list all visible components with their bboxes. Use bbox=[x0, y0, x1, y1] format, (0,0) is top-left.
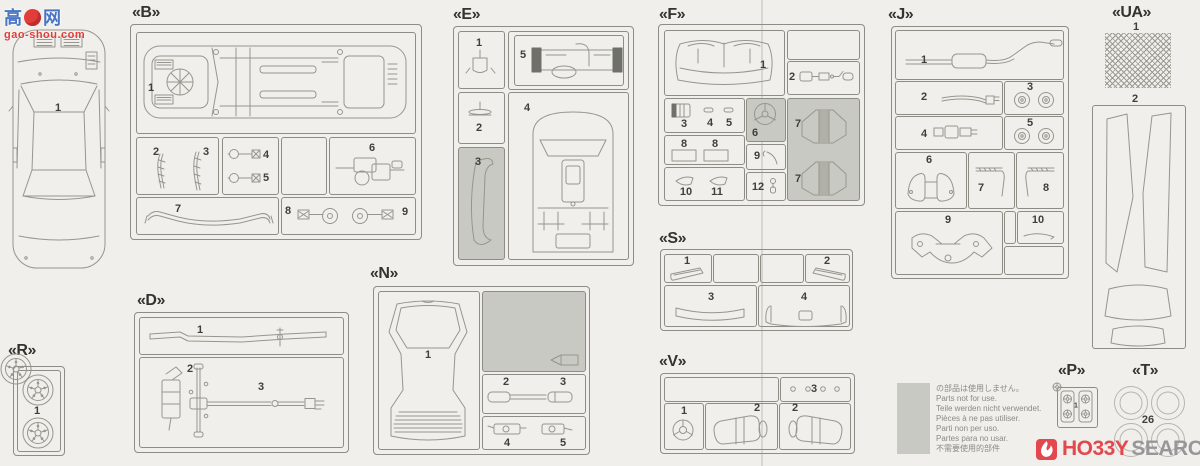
v-box-empty bbox=[664, 377, 779, 402]
watermark-ball-icon bbox=[24, 9, 41, 26]
part-number-e-3: 3 bbox=[475, 156, 481, 168]
watermark: 高 网 gao-shou.com bbox=[4, 4, 85, 41]
part-number-body-1: 1 bbox=[55, 102, 61, 114]
part-number-e-5: 5 bbox=[520, 49, 526, 61]
j-hubs-drawing-a bbox=[1008, 90, 1060, 110]
part-number-j-8: 8 bbox=[1043, 182, 1049, 194]
e-part2-drawing bbox=[462, 98, 499, 122]
v-seat-left-drawing bbox=[706, 410, 776, 446]
part-number-b-9: 9 bbox=[402, 206, 408, 218]
j-subframe-drawing bbox=[898, 226, 998, 272]
watermark-char-right: 网 bbox=[43, 4, 61, 30]
not-for-use-swatch bbox=[897, 383, 930, 454]
part-number-v-2b: 2 bbox=[792, 402, 798, 414]
j-pipe-l-drawing bbox=[970, 160, 1012, 204]
part-number-s-1: 1 bbox=[684, 255, 690, 267]
part-number-t-26: 26 bbox=[1142, 414, 1154, 426]
part-number-f-8b: 8 bbox=[712, 138, 718, 150]
part-number-b-8: 8 bbox=[285, 205, 291, 217]
part-number-n-4: 4 bbox=[504, 437, 510, 449]
chassis-drawing bbox=[140, 36, 410, 128]
s-spoiler-drawing bbox=[670, 302, 750, 324]
s-skirt-left-drawing bbox=[668, 266, 708, 282]
b-box-empty bbox=[281, 137, 327, 195]
section-n-label: «N» bbox=[370, 265, 398, 283]
section-f-label: «F» bbox=[659, 6, 685, 24]
e-part4-interior-tub-drawing bbox=[520, 104, 626, 256]
part-number-j-7: 7 bbox=[978, 182, 984, 194]
section-v-label: «V» bbox=[659, 353, 686, 371]
s-bumper-drawing bbox=[762, 300, 846, 326]
j-hubs-drawing-b bbox=[1008, 126, 1060, 146]
section-t-label: «T» bbox=[1132, 362, 1158, 380]
section-r-label: «R» bbox=[8, 342, 36, 360]
part-number-j-4: 4 bbox=[921, 128, 927, 140]
part-number-n-5: 5 bbox=[560, 437, 566, 449]
not-for-use-legend: の部品は使用しません。 Parts not for use. Teile wer… bbox=[936, 384, 1041, 454]
s-box-empty-1 bbox=[713, 254, 759, 283]
part-number-f-1: 1 bbox=[760, 59, 766, 71]
e-part1-drawing bbox=[460, 46, 501, 84]
part-number-p-1: 1 bbox=[1074, 403, 1078, 410]
part-number-d-3: 3 bbox=[258, 381, 264, 393]
stabilizer-bar-drawing bbox=[140, 204, 274, 230]
shaft-parts-drawing bbox=[224, 140, 274, 192]
legend-line-en: Parts not for use. bbox=[936, 394, 1041, 404]
part-number-j-3: 3 bbox=[1027, 81, 1033, 93]
f-mirrors-drawing bbox=[668, 172, 740, 188]
legend-line-fr: Pièces à ne pas utiliser. bbox=[936, 414, 1041, 424]
section-s-label: «S» bbox=[659, 230, 686, 248]
part-number-v-2a: 2 bbox=[754, 402, 760, 414]
parts-map-sheet: 高 网 gao-shou.com 1 «B» 1 2 3 4 bbox=[0, 0, 1200, 466]
n-glazing-drawing bbox=[381, 294, 475, 446]
f-box-empty bbox=[787, 30, 860, 60]
part-number-j-6: 6 bbox=[926, 154, 932, 166]
watermark-logo: 高 网 bbox=[4, 4, 85, 30]
v-seat-right-drawing bbox=[780, 410, 850, 446]
part-number-b-7: 7 bbox=[175, 203, 181, 215]
f-shifter-drawing bbox=[798, 66, 856, 90]
watermark-char-left: 高 bbox=[4, 4, 22, 30]
e-part5-dashboard-drawing bbox=[530, 38, 626, 82]
part-number-f-5: 5 bbox=[726, 117, 732, 129]
f-knob-drawing bbox=[766, 176, 780, 196]
part-number-j-5: 5 bbox=[1027, 117, 1033, 129]
part-number-f-12: 12 bbox=[752, 181, 764, 193]
section-j-label: «J» bbox=[888, 6, 913, 24]
part-number-d-1: 1 bbox=[197, 324, 203, 336]
hobby-search-flame-icon bbox=[1036, 439, 1057, 460]
legend-line-zh: 不需要使用的部件 bbox=[936, 444, 1041, 454]
part-number-s-3: 3 bbox=[708, 291, 714, 303]
ua-mesh-sheet bbox=[1105, 33, 1171, 88]
part-number-n-2: 2 bbox=[503, 376, 509, 388]
part-number-d-2: 2 bbox=[187, 363, 193, 375]
part-number-v-3: 3 bbox=[811, 383, 817, 395]
part-number-f-8a: 8 bbox=[681, 138, 687, 150]
legend-line-es: Partes para no usar. bbox=[936, 434, 1041, 444]
n-small-lenses-drawing bbox=[486, 420, 582, 440]
car-body-top-drawing bbox=[6, 22, 112, 274]
v-wheel-drawing bbox=[666, 416, 700, 446]
f-lever-drawing bbox=[762, 148, 782, 166]
part-number-f-9: 9 bbox=[754, 150, 760, 162]
part-number-s-2: 2 bbox=[824, 255, 830, 267]
motor-assembly-drawing bbox=[332, 152, 412, 190]
part-number-r-1: 1 bbox=[34, 405, 40, 417]
section-b-label: «B» bbox=[132, 4, 160, 22]
d-driveshaft-assembly-drawing bbox=[142, 362, 342, 444]
part-number-f-10: 10 bbox=[680, 186, 692, 198]
part-number-f-4: 4 bbox=[707, 117, 713, 129]
section-p-label: «P» bbox=[1058, 362, 1085, 380]
part-number-f-7b: 7 bbox=[795, 173, 801, 185]
part-number-n-1: 1 bbox=[425, 349, 431, 361]
part-number-f-6: 6 bbox=[752, 127, 758, 139]
part-number-s-4: 4 bbox=[801, 291, 807, 303]
j-pipe-drawing bbox=[936, 86, 1000, 108]
ua-window-masks-drawing bbox=[1094, 107, 1182, 345]
part-number-b-4: 4 bbox=[263, 149, 269, 161]
hobby-search-logo: HO33Y SEARCH bbox=[1036, 437, 1200, 461]
part-number-f-11: 11 bbox=[711, 186, 723, 198]
part-number-e-2: 2 bbox=[476, 122, 482, 134]
legend-line-de: Teile werden nicht verwendet. bbox=[936, 404, 1041, 414]
part-number-e-4: 4 bbox=[524, 102, 530, 114]
section-e-label: «E» bbox=[453, 6, 480, 24]
part-number-ua-2: 2 bbox=[1132, 93, 1138, 105]
j-box-strip bbox=[1004, 211, 1016, 244]
n-lens-strip-drawing bbox=[486, 388, 582, 406]
part-number-b-3: 3 bbox=[203, 146, 209, 158]
f-steering-wheel-drawing bbox=[748, 100, 782, 130]
s-skirt-right-drawing bbox=[808, 266, 848, 282]
n-funnel-part-drawing bbox=[548, 352, 584, 368]
legend-line-jp: の部品は使用しません。 bbox=[936, 384, 1041, 394]
part-number-b-5: 5 bbox=[263, 172, 269, 184]
d-rod-drawing bbox=[142, 322, 338, 348]
j-rod-drawing bbox=[1020, 230, 1060, 242]
part-number-b-2: 2 bbox=[153, 146, 159, 158]
part-number-e-1: 1 bbox=[476, 37, 482, 49]
logo-search-text: SEARCH bbox=[1131, 437, 1200, 461]
section-ua-label: «UA» bbox=[1112, 4, 1151, 22]
part-number-v-1: 1 bbox=[681, 405, 687, 417]
part-number-j-9: 9 bbox=[945, 214, 951, 226]
f-plate-parts-drawing bbox=[668, 148, 740, 164]
j-connector-drawing bbox=[898, 120, 1000, 144]
part-number-f-2: 2 bbox=[789, 71, 795, 83]
section-d-label: «D» bbox=[137, 292, 165, 310]
logo-hobby-text: HO33Y bbox=[1062, 437, 1128, 461]
legend-line-it: Parti non per uso. bbox=[936, 424, 1041, 434]
part-number-j-1: 1 bbox=[921, 54, 927, 66]
part-number-n-3: 3 bbox=[560, 376, 566, 388]
j-pipe-r-drawing bbox=[1018, 160, 1060, 204]
part-number-f-7a: 7 bbox=[795, 118, 801, 130]
j-box-empty bbox=[1004, 246, 1064, 275]
axle-shaft-drawing bbox=[292, 202, 412, 230]
watermark-site: gao-shou.com bbox=[4, 29, 85, 41]
part-number-b-1: 1 bbox=[148, 82, 154, 94]
part-number-f-3: 3 bbox=[681, 118, 687, 130]
part-number-j-2: 2 bbox=[921, 91, 927, 103]
part-number-b-6: 6 bbox=[369, 142, 375, 154]
part-number-j-10: 10 bbox=[1032, 214, 1044, 226]
s-box-empty-2 bbox=[760, 254, 804, 283]
part-number-ua-1: 1 bbox=[1133, 21, 1139, 33]
